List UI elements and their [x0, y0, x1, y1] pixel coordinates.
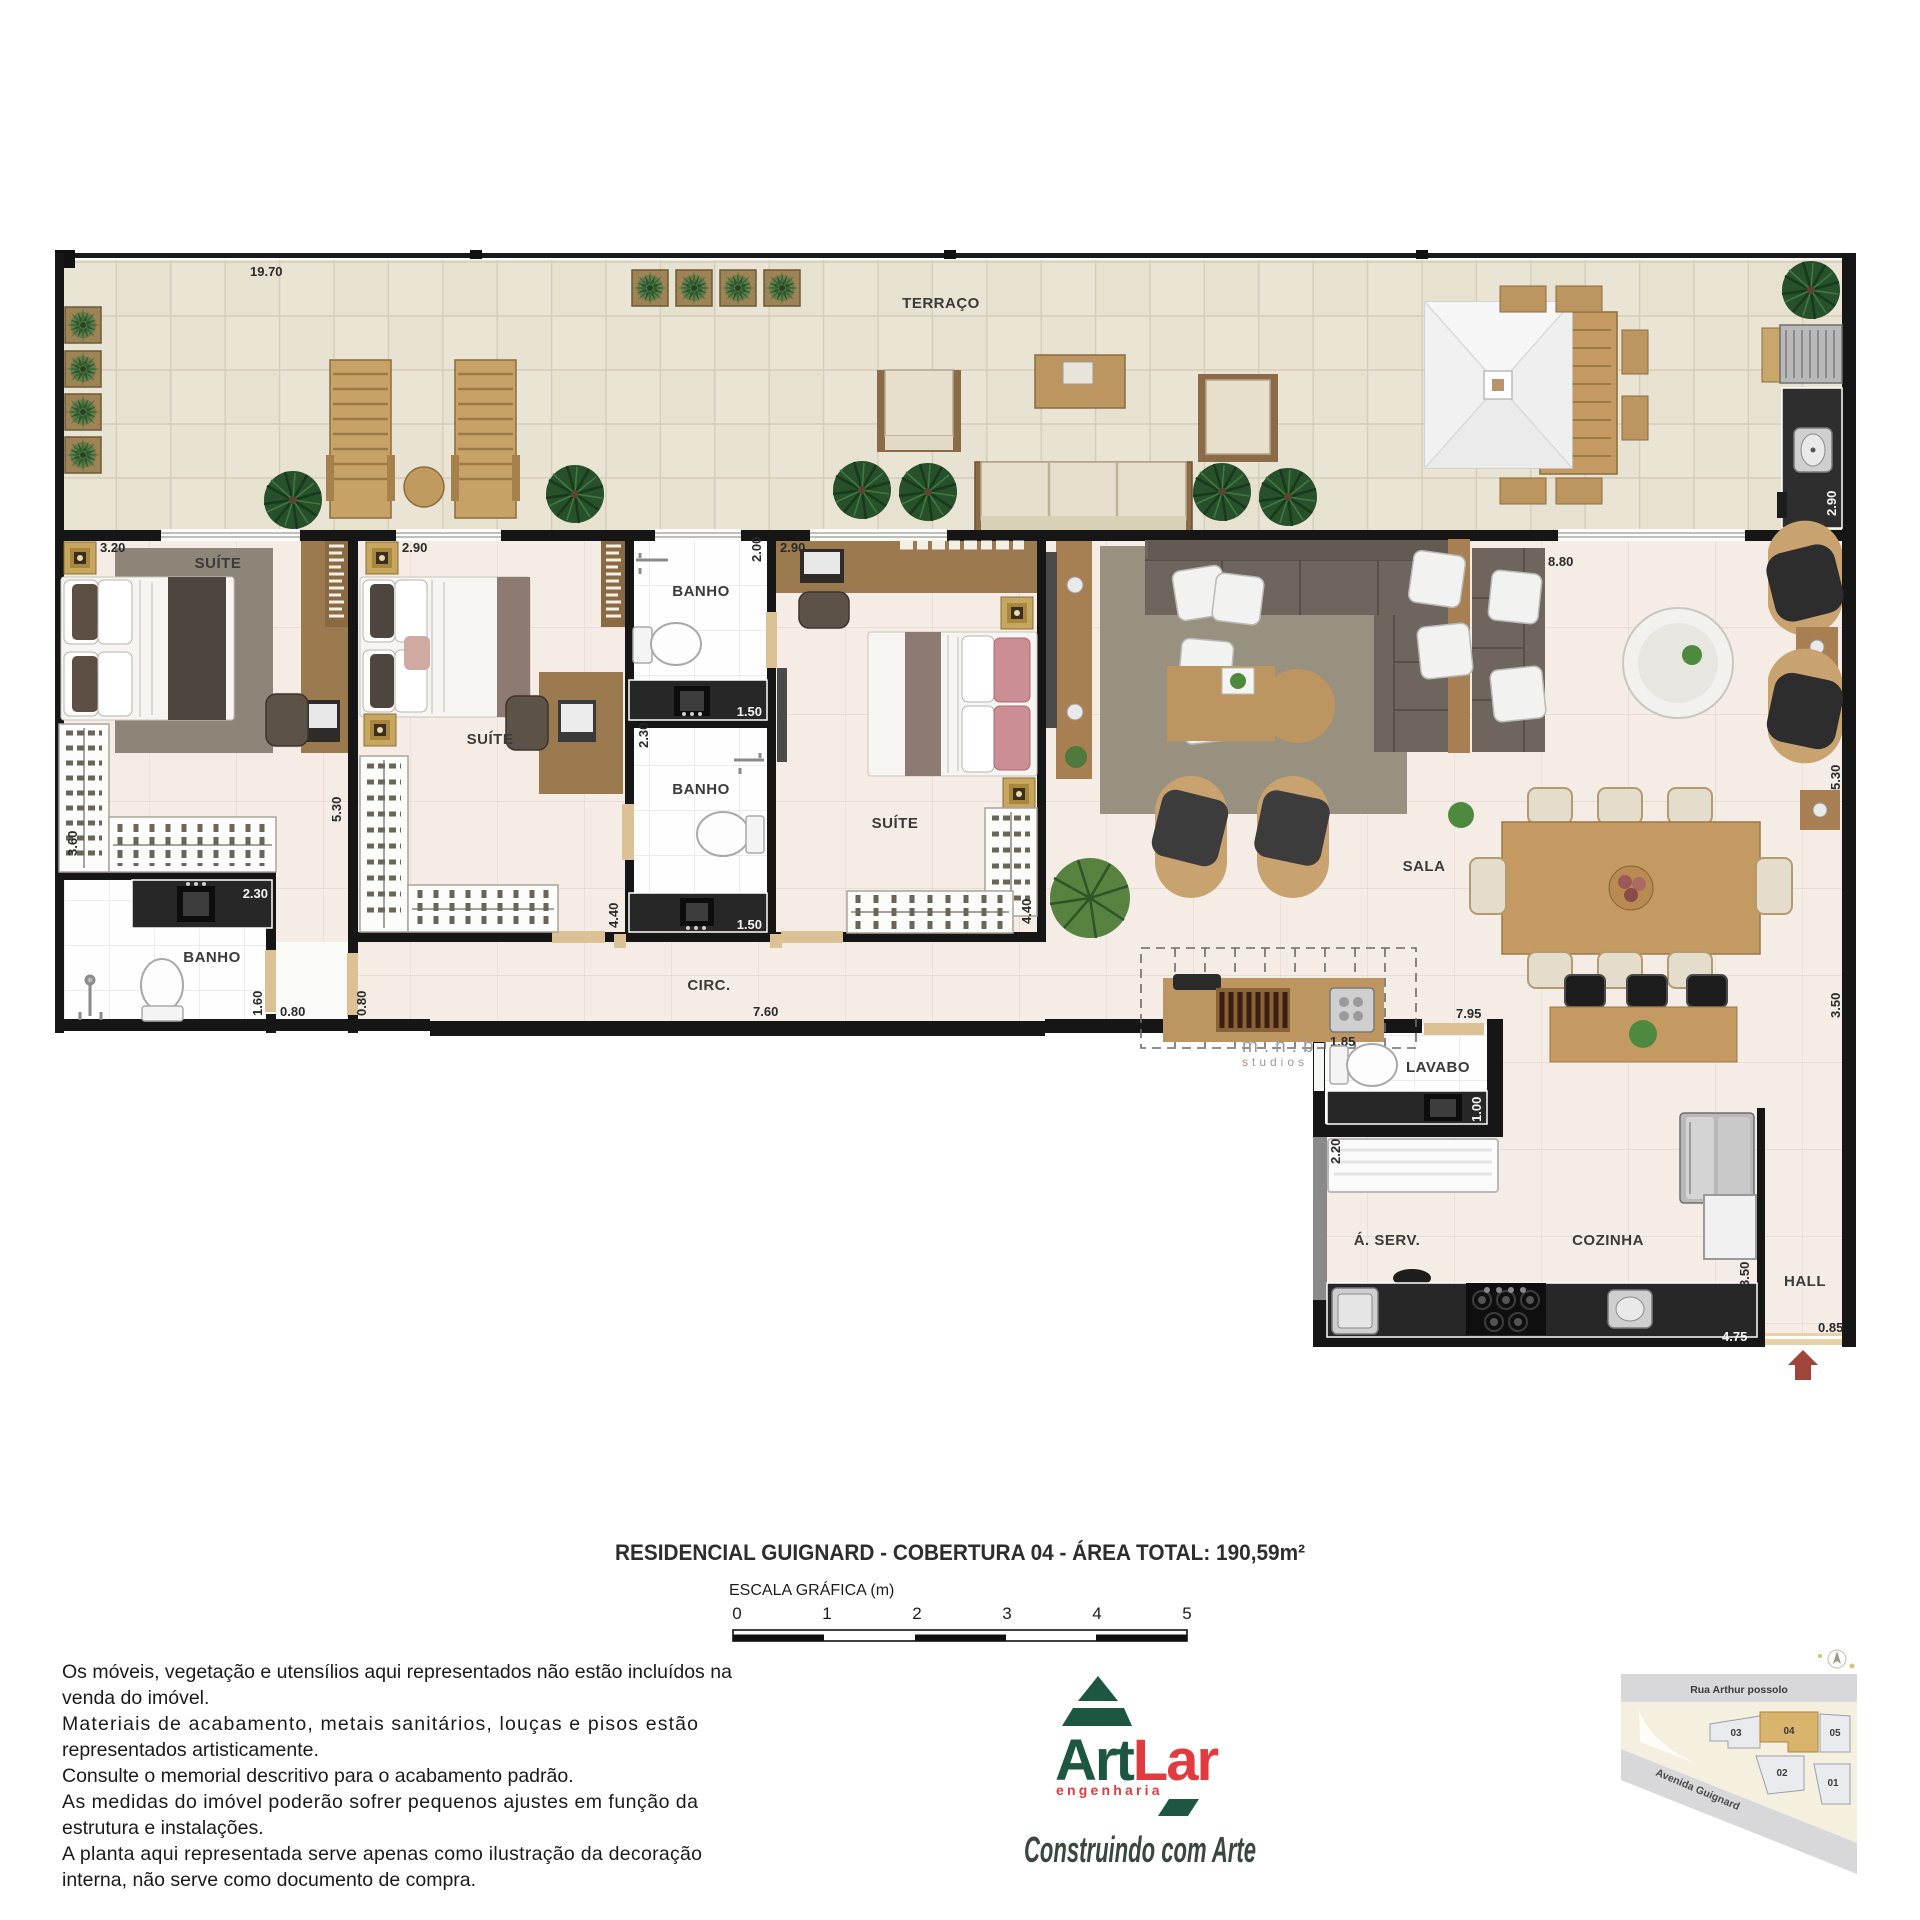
- svg-text:BANHO: BANHO: [672, 583, 730, 600]
- svg-text:1.50: 1.50: [737, 917, 762, 932]
- svg-text:3.50: 3.50: [1828, 993, 1843, 1018]
- svg-text:Á. SERV.: Á. SERV.: [1354, 1232, 1421, 1249]
- svg-text:SALA: SALA: [1403, 858, 1446, 875]
- svg-text:19.70: 19.70: [250, 264, 283, 279]
- svg-text:1.50: 1.50: [737, 704, 762, 719]
- svg-text:3.60: 3.60: [65, 831, 80, 856]
- svg-text:A planta aqui representada ser: A planta aqui representada serve apenas …: [62, 1843, 702, 1865]
- svg-text:2.90: 2.90: [1824, 491, 1839, 516]
- svg-text:engenharia: engenharia: [1056, 1782, 1163, 1798]
- svg-text:BANHO: BANHO: [672, 781, 730, 798]
- svg-text:COZINHA: COZINHA: [1572, 1232, 1644, 1249]
- svg-text:4: 4: [1092, 1604, 1101, 1623]
- svg-text:SUÍTE: SUÍTE: [467, 731, 514, 748]
- svg-text:2.00: 2.00: [749, 537, 764, 562]
- svg-text:03: 03: [1730, 1728, 1742, 1739]
- svg-text:estrutura e instalações.: estrutura e instalações.: [62, 1817, 264, 1839]
- svg-text:2: 2: [912, 1604, 921, 1623]
- svg-text:Os móveis, vegetação e utensíl: Os móveis, vegetação e utensílios aqui r…: [62, 1661, 732, 1683]
- svg-text:1: 1: [822, 1604, 831, 1623]
- svg-text:0.80: 0.80: [280, 1004, 305, 1019]
- svg-text:LAVABO: LAVABO: [1406, 1059, 1470, 1076]
- svg-text:0.85: 0.85: [1818, 1320, 1843, 1335]
- svg-text:04: 04: [1783, 1726, 1795, 1737]
- svg-text:SUÍTE: SUÍTE: [872, 815, 919, 832]
- svg-text:Materiais de acabamento, metai: Materiais de acabamento, metais sanitári…: [62, 1713, 698, 1735]
- svg-text:RESIDENCIAL GUIGNARD - COBERTU: RESIDENCIAL GUIGNARD - COBERTURA 04 - ÁR…: [615, 1540, 1305, 1565]
- svg-text:venda do imóvel.: venda do imóvel.: [62, 1687, 209, 1709]
- svg-text:4.75: 4.75: [1722, 1329, 1747, 1344]
- svg-text:4.40: 4.40: [1019, 899, 1034, 924]
- svg-text:3.20: 3.20: [100, 540, 125, 555]
- svg-text:2.30: 2.30: [636, 723, 651, 748]
- svg-text:4.40: 4.40: [606, 903, 621, 928]
- svg-text:TERRAÇO: TERRAÇO: [902, 295, 980, 312]
- svg-text:HALL: HALL: [1784, 1273, 1826, 1290]
- svg-text:7.95: 7.95: [1456, 1006, 1481, 1021]
- svg-text:2.30: 2.30: [243, 886, 268, 901]
- svg-text:representados artisticamente.: representados artisticamente.: [62, 1739, 319, 1761]
- svg-text:interna, não serve como docume: interna, não serve como documento de com…: [62, 1869, 476, 1891]
- svg-text:2.90: 2.90: [780, 540, 805, 555]
- svg-text:0: 0: [732, 1604, 741, 1623]
- svg-text:As medidas do imóvel poderão s: As medidas do imóvel poderão sofrer pequ…: [62, 1791, 698, 1813]
- svg-text:Consulte o memorial descritivo: Consulte o memorial descritivo para o ac…: [62, 1765, 574, 1787]
- svg-text:5: 5: [1182, 1604, 1191, 1623]
- svg-text:2.20: 2.20: [1328, 1139, 1343, 1164]
- svg-text:02: 02: [1776, 1768, 1788, 1779]
- svg-text:Construindo com Arte: Construindo com Arte: [1024, 1829, 1256, 1870]
- svg-text:1.00: 1.00: [1469, 1097, 1484, 1122]
- svg-text:Rua Arthur possolo: Rua Arthur possolo: [1690, 1684, 1788, 1696]
- svg-text:3.50: 3.50: [1737, 1262, 1752, 1287]
- svg-text:0.80: 0.80: [354, 991, 369, 1016]
- svg-text:05: 05: [1829, 1728, 1841, 1739]
- svg-text:m.h.b: m.h.b: [1242, 1036, 1320, 1057]
- svg-text:2.90: 2.90: [402, 540, 427, 555]
- svg-text:3: 3: [1002, 1604, 1011, 1623]
- svg-text:01: 01: [1827, 1778, 1839, 1789]
- svg-text:5.30: 5.30: [1828, 765, 1843, 790]
- svg-text:CIRC.: CIRC.: [687, 977, 730, 994]
- svg-text:7.60: 7.60: [753, 1004, 778, 1019]
- svg-text:8.80: 8.80: [1548, 554, 1573, 569]
- svg-text:SUÍTE: SUÍTE: [195, 555, 242, 572]
- svg-text:5.30: 5.30: [329, 797, 344, 822]
- svg-text:BANHO: BANHO: [183, 949, 241, 966]
- svg-text:ESCALA GRÁFICA (m): ESCALA GRÁFICA (m): [729, 1580, 894, 1599]
- svg-text:studios: studios: [1242, 1055, 1308, 1069]
- svg-text:1.60: 1.60: [250, 991, 265, 1016]
